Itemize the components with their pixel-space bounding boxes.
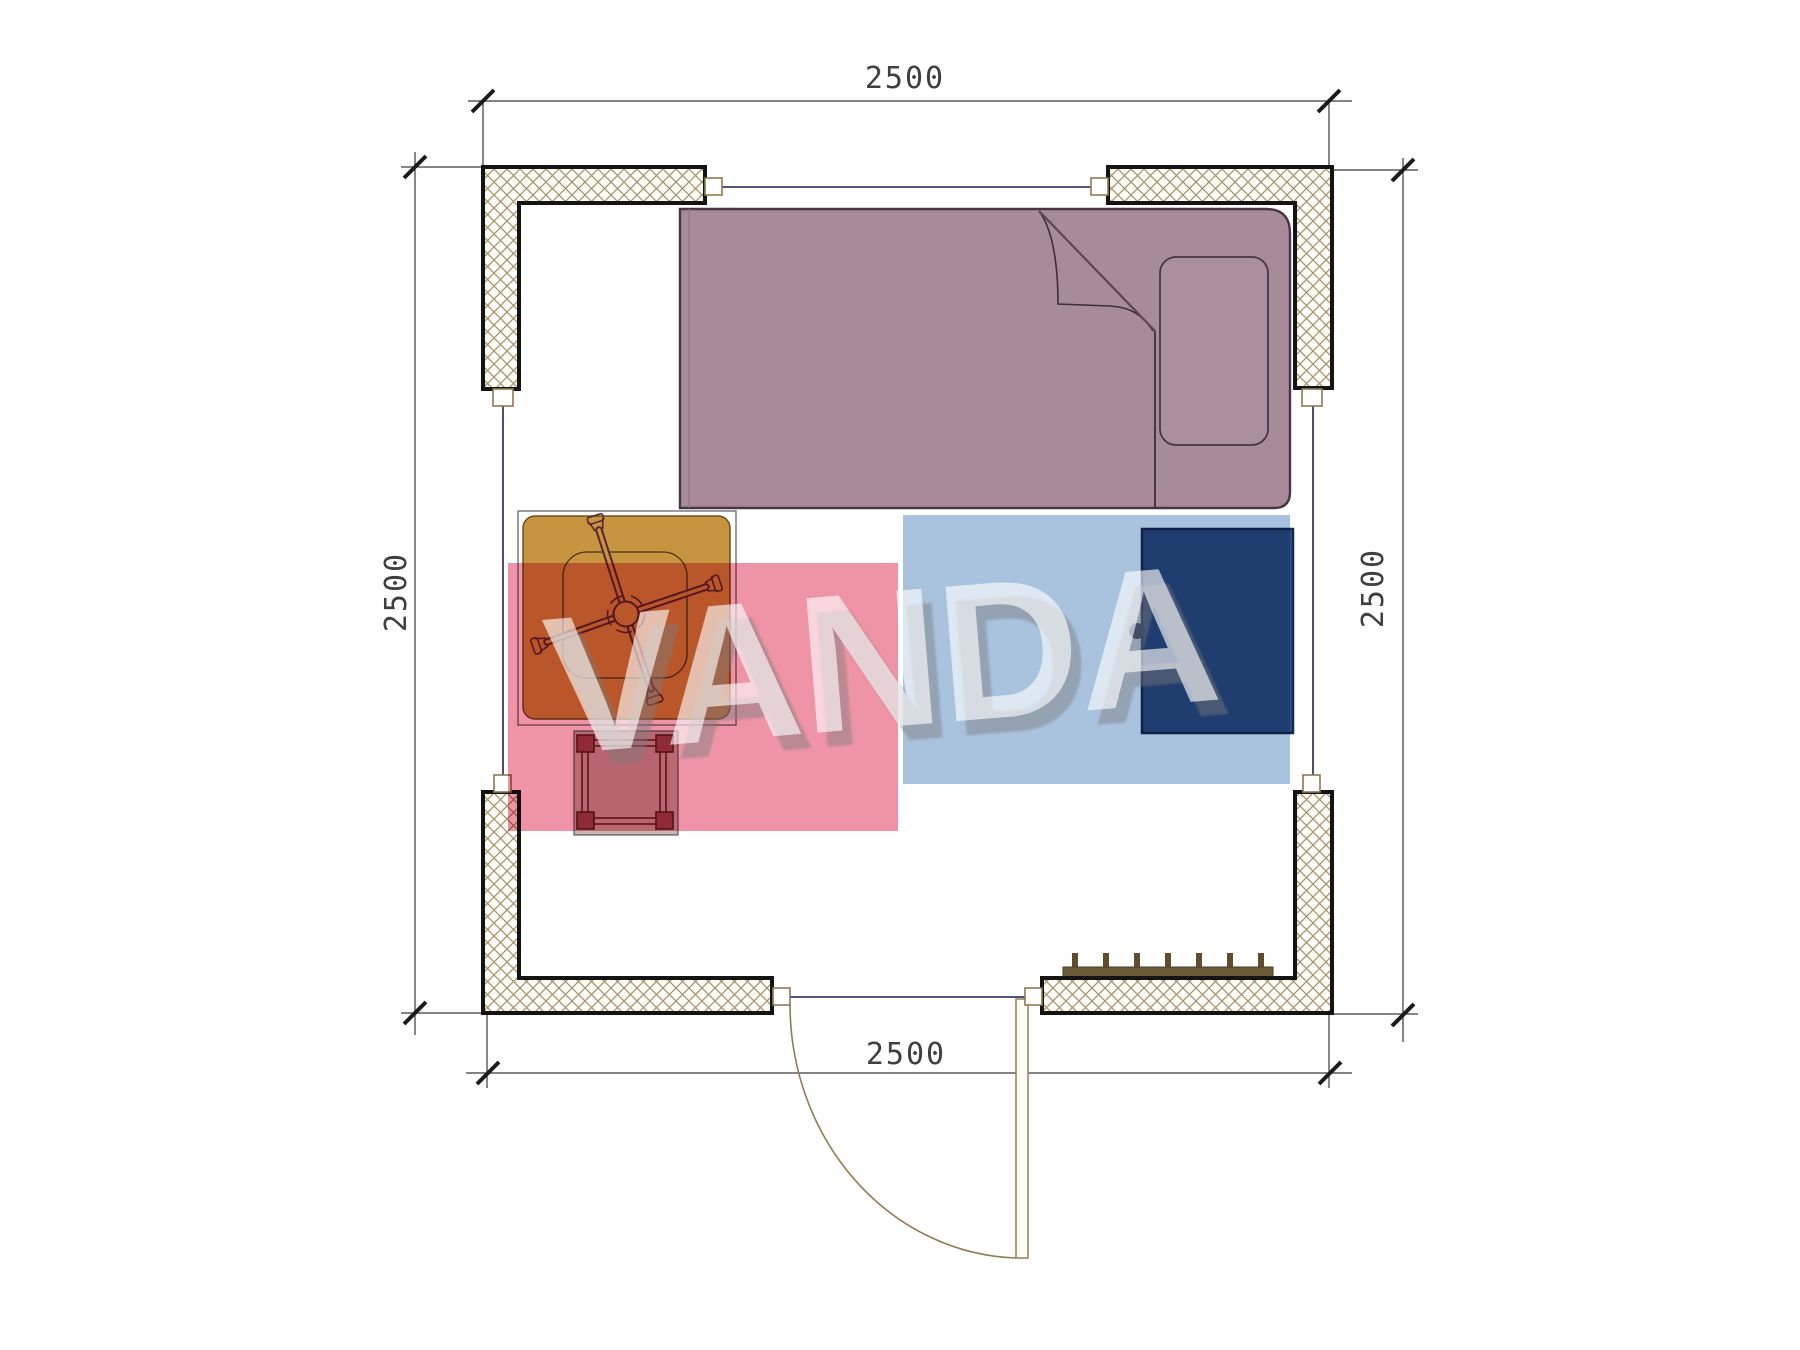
door-jamb-left bbox=[773, 988, 790, 1005]
dimension-label-left: 2500 bbox=[380, 532, 414, 652]
wall-top-left bbox=[483, 167, 705, 389]
bed bbox=[680, 209, 1290, 508]
door-leaf bbox=[1016, 999, 1028, 1258]
wall-bottom-right bbox=[1042, 792, 1332, 1013]
pillow bbox=[1160, 257, 1268, 445]
dimension-label-top: 2500 bbox=[845, 62, 965, 96]
floor-plan-canvas: VANDA 2500 2500 2500 2500 bbox=[0, 0, 1800, 1350]
watermark-text: VANDA bbox=[538, 535, 1224, 785]
radiator bbox=[1063, 953, 1273, 980]
door-jamb-right bbox=[1025, 988, 1042, 1005]
dimension-label-bottom: 2500 bbox=[846, 1038, 966, 1072]
dimension-label-right: 2500 bbox=[1357, 528, 1391, 648]
